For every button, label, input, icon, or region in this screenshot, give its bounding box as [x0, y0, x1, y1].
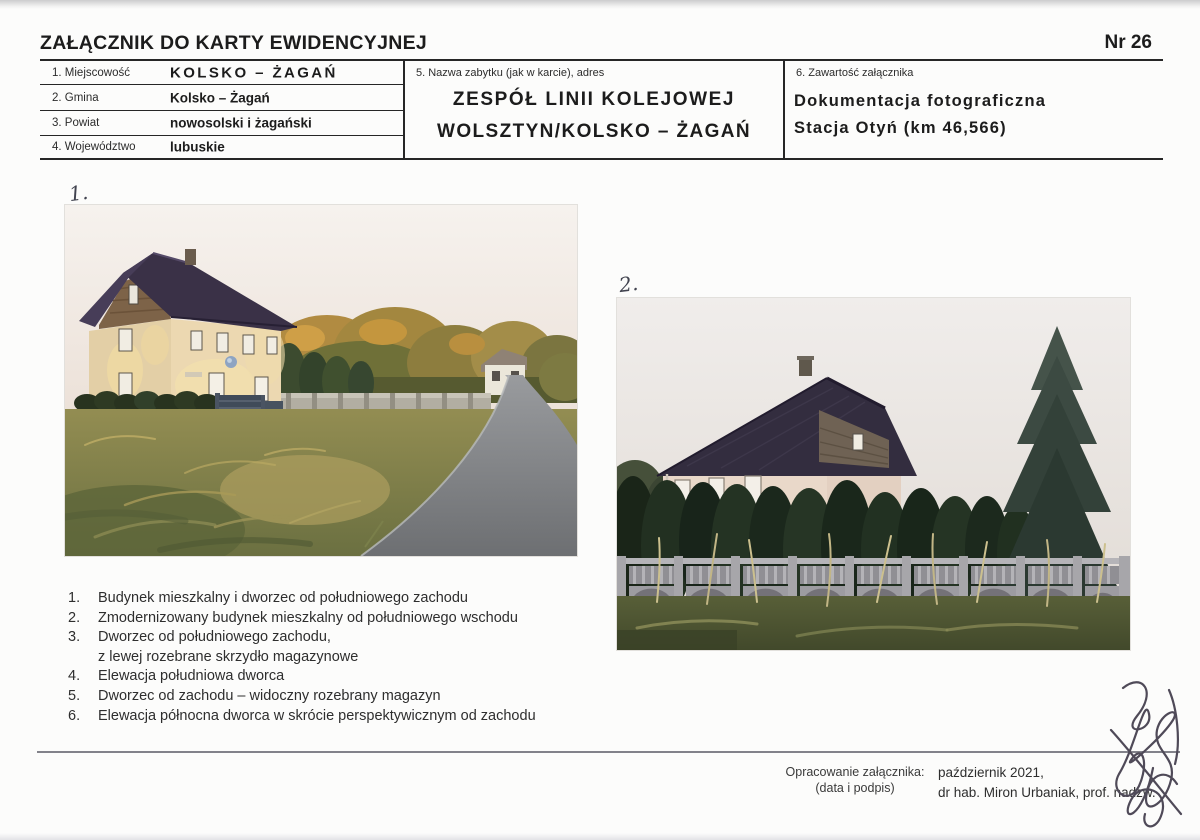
- monument-cell-label: 5. Nazwa zabytku (jak w karcie), adres: [416, 67, 604, 79]
- caption-line2: z lewej rozebrane skrzydło magazynowe: [98, 648, 608, 668]
- caption-item-3: 3. Dworzec od południowego zachodu, z le…: [68, 628, 608, 667]
- caption-line1: Dworzec od południowego zachodu,: [98, 629, 331, 645]
- chimney: [185, 249, 196, 265]
- photo-2-modernized-house-from-southeast: [617, 298, 1130, 650]
- scan-edge-bottom: [0, 833, 1200, 840]
- caption-item-1: 1. Budynek mieszkalny i dworzec od połud…: [68, 589, 608, 609]
- caption-line1: Budynek mieszkalny i dworzec od południo…: [98, 590, 468, 606]
- page-title: ZAŁĄCZNIK DO KARTY EWIDENCYJNEJ: [40, 32, 427, 55]
- photo-1-handwritten-number: 1.: [68, 180, 90, 206]
- caption-item-2: 2. Zmodernizowany budynek mieszkalny od …: [68, 609, 608, 629]
- caption-number: 2.: [68, 609, 98, 629]
- caption-number: 5.: [68, 687, 98, 707]
- contents-line1: Dokumentacja fotograficzna: [794, 92, 1046, 111]
- caption-text: Elewacja północna dworca w skrócie persp…: [98, 707, 608, 727]
- field-label: 3. Powiat: [52, 117, 99, 129]
- caption-line1: Dworzec od zachodu – widoczny rozebrany …: [98, 688, 441, 704]
- scan-edge-top: [0, 0, 1200, 9]
- caption-text: Dworzec od południowego zachodu, z lewej…: [98, 628, 608, 667]
- caption-text: Dworzec od zachodu – widoczny rozebrany …: [98, 687, 608, 707]
- monument-name-line2: WOLSZTYN/KOLSKO – ŻAGAŃ: [405, 121, 783, 143]
- photo-1-house-and-station-from-southwest: [65, 205, 577, 556]
- field-row-miejscowosc: 1. Miejscowość KOLSKO – ŻAGAŃ: [40, 61, 403, 85]
- caption-number: 6.: [68, 707, 98, 727]
- record-card-attachment-page: ZAŁĄCZNIK DO KARTY EWIDENCYJNEJ Nr 26 1.…: [0, 0, 1200, 840]
- field-label: 4. Województwo: [52, 141, 136, 153]
- caption-number: 1.: [68, 589, 98, 609]
- caption-text: Budynek mieszkalny i dworzec od południo…: [98, 589, 608, 609]
- photo-caption-list: 1. Budynek mieszkalny i dworzec od połud…: [68, 589, 608, 726]
- footer-label-line1: Opracowanie załącznika:: [780, 764, 930, 780]
- field-row-gmina: 2. Gmina Kolsko – Żagań: [40, 85, 403, 111]
- field-row-powiat: 3. Powiat nowosolski i żagański: [40, 111, 403, 136]
- attachment-contents-cell: 6. Zawartość załącznika Dokumentacja fot…: [783, 61, 1163, 158]
- caption-text: Elewacja południowa dworca: [98, 667, 608, 687]
- contents-line2: Stacja Otyń (km 46,566): [794, 119, 1007, 138]
- handwritten-signature: [1083, 672, 1193, 832]
- caption-item-6: 6. Elewacja północna dworca w skrócie pe…: [68, 707, 608, 727]
- field-value: KOLSKO – ŻAGAŃ: [170, 64, 338, 81]
- photo-2-scene: [617, 298, 1130, 650]
- caption-item-5: 5. Dworzec od zachodu – widoczny rozebra…: [68, 687, 608, 707]
- field-label: 2. Gmina: [52, 92, 99, 104]
- chimney: [799, 358, 812, 376]
- caption-line1: Zmodernizowany budynek mieszkalny od poł…: [98, 610, 518, 626]
- photo-1-scene: [65, 205, 577, 556]
- attachment-number: Nr 26: [1104, 32, 1152, 54]
- wall-sign: [185, 372, 202, 377]
- caption-number: 4.: [68, 667, 98, 687]
- header-table: 1. Miejscowość KOLSKO – ŻAGAŃ 2. Gmina K…: [40, 59, 1163, 160]
- footer-label: Opracowanie załącznika: (data i podpis): [780, 764, 930, 796]
- field-label: 1. Miejscowość: [52, 67, 130, 79]
- caption-number: 3.: [68, 628, 98, 667]
- contents-cell-label: 6. Zawartość załącznika: [796, 67, 913, 79]
- footer-rule: [37, 751, 1180, 753]
- caption-line1: Elewacja południowa dworca: [98, 668, 284, 684]
- footer-label-line2: (data i podpis): [780, 780, 930, 796]
- field-value: nowosolski i żagański: [170, 116, 312, 131]
- field-row-wojewodztwo: 4. Województwo lubuskie: [40, 136, 403, 158]
- caption-text: Zmodernizowany budynek mieszkalny od poł…: [98, 609, 608, 629]
- monument-name-line1: ZESPÓŁ LINII KOLEJOWEJ: [405, 89, 783, 111]
- field-value: lubuskie: [170, 140, 225, 155]
- monument-name-cell: 5. Nazwa zabytku (jak w karcie), adres Z…: [403, 61, 783, 158]
- caption-line1: Elewacja północna dworca w skrócie persp…: [98, 708, 536, 724]
- signature-strokes: [1083, 672, 1193, 832]
- location-fields-column: 1. Miejscowość KOLSKO – ŻAGAŃ 2. Gmina K…: [40, 61, 403, 158]
- photo-2-handwritten-number: 2.: [618, 271, 640, 297]
- field-value: Kolsko – Żagań: [170, 90, 270, 105]
- caption-item-4: 4. Elewacja południowa dworca: [68, 667, 608, 687]
